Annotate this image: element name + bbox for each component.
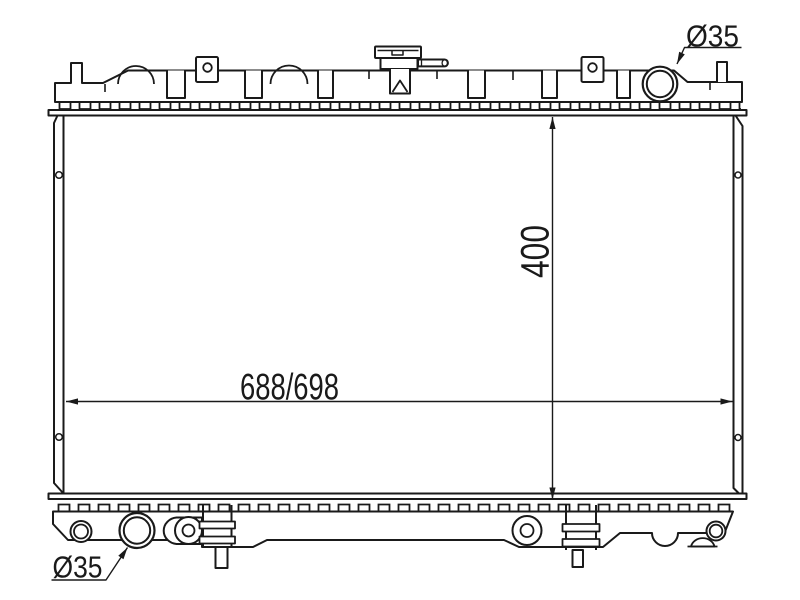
top-mount-bracket-left-hole	[203, 63, 212, 72]
frame-hole-top-left	[56, 172, 63, 179]
roller-left-hole	[183, 525, 195, 537]
frame-hole-top-right	[735, 172, 741, 178]
bottom-header-flange	[49, 494, 747, 500]
dia-label-top: Ø35	[686, 19, 739, 54]
bottom-header	[49, 494, 747, 512]
side-frame-right	[734, 116, 743, 494]
top-header	[49, 102, 747, 116]
bottom-tank	[53, 505, 733, 568]
top-tank	[55, 47, 742, 103]
dim-width-label: 688/698	[240, 367, 339, 408]
mount-pin-right	[573, 550, 584, 567]
frame-hole-bottom-right	[735, 435, 741, 441]
bottom-crimp-teeth	[56, 503, 732, 512]
radiator-diagram: 688/698 400 Ø35 Ø35	[0, 0, 800, 600]
radiator-drawing: 688/698 400 Ø35 Ø35	[0, 0, 800, 600]
dimensions	[52, 48, 742, 581]
mount-pin-left	[216, 547, 228, 568]
mount-bracket-right-bar1	[563, 524, 600, 532]
mount-bracket-left-bar1	[200, 522, 236, 529]
top-crimp-teeth	[57, 102, 741, 110]
side-frame-left	[54, 116, 64, 494]
mount-bracket-right-bar2	[563, 539, 600, 547]
inlet-opening-outer	[643, 67, 678, 102]
dim-height-label: 400	[514, 225, 558, 278]
top-header-flange	[49, 110, 747, 116]
top-mount-bracket-right-hole	[588, 63, 597, 72]
roller-right-hole	[521, 524, 534, 537]
mount-bracket-left-bar2	[200, 537, 236, 544]
frame-hole-bottom-left	[56, 434, 63, 441]
dia-label-bottom: Ø35	[53, 550, 103, 585]
filler-neck	[381, 58, 418, 70]
filler-cap	[375, 47, 421, 59]
top-tank-right-tab	[717, 62, 727, 82]
